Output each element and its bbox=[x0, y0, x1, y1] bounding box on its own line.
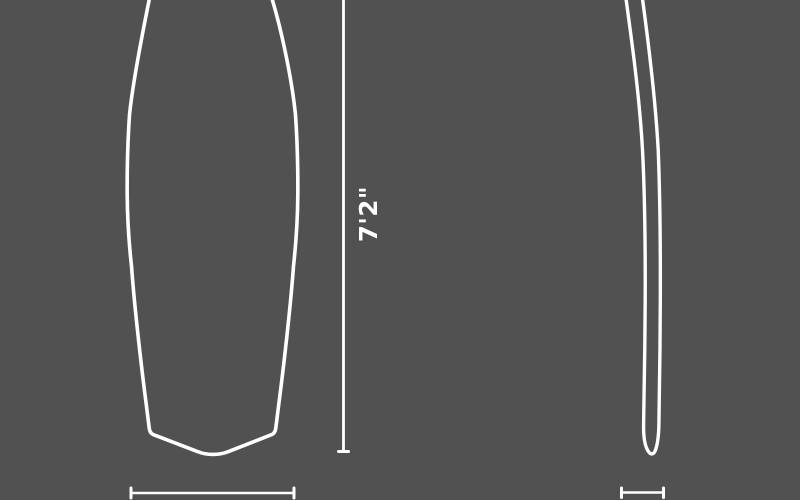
board-dimensions-diagram: 7'2" bbox=[0, 0, 800, 500]
length-dimension-label: 7'2" bbox=[354, 186, 383, 242]
length-dimension-line bbox=[339, 0, 349, 452]
top-view-width-dimension-line bbox=[131, 488, 294, 498]
side-view-thickness-dimension-line bbox=[622, 488, 664, 498]
board-top-view-outline bbox=[127, 0, 298, 454]
diagram-canvas: 7'2" bbox=[0, 0, 800, 500]
board-side-view-outline bbox=[625, 0, 661, 454]
line-art-group bbox=[127, 0, 663, 498]
